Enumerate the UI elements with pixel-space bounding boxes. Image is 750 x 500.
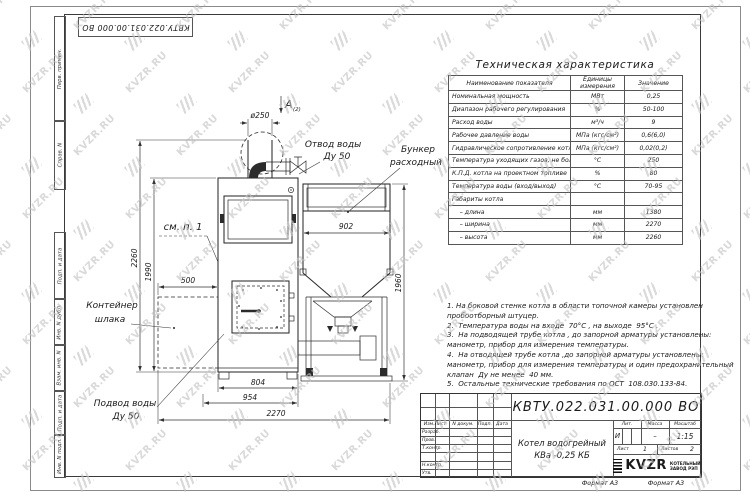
spec-table-cell: Рабочее давление воды — [449, 129, 571, 142]
spec-table: Наименование показателя Единицы измерени… — [448, 75, 683, 245]
bunker-label-1: Бункер — [401, 145, 435, 155]
spec-table-cell — [571, 193, 625, 206]
kvzr-logo-sub-line2: ЗАВОД РЭП — [670, 466, 698, 471]
spec-table-section: Техническая характеристика Наименование … — [448, 59, 682, 245]
spec-table-cell: 250 — [625, 154, 683, 167]
spec-table-row: Номинальная мощностьМВт0,25 — [449, 91, 683, 104]
revision-header-podp: Подп. — [477, 422, 493, 427]
revision-header-izm-list: Изм.Лист — [421, 422, 449, 427]
spec-table-row: Диапазон рабочего регулирования%50-100 — [449, 103, 683, 116]
spec-table-cell: Температура воды (вход/выход) — [449, 180, 571, 193]
spec-header-cell: Единицы измерения — [571, 76, 625, 91]
revision-header-doc: N докум. — [449, 422, 477, 427]
outlet-label-2: Ду 50 — [323, 152, 351, 162]
staff-row-prov: Пров. — [422, 438, 448, 443]
spec-table-cell: м³/ч — [571, 116, 625, 129]
note-line: 2. Температура воды на входе 70°С , на в… — [447, 321, 699, 331]
spec-table-cell: 0,6(6,0) — [625, 129, 683, 142]
see-note-label: см. п. 1 — [164, 222, 203, 233]
spec-table-cell: МПа (кгс/см²) — [571, 142, 625, 155]
notes-block: 1. На боковой стенке котла в области топ… — [447, 301, 699, 389]
spec-table-row: Рабочее давление водыМПа (кгс/см²)0,6(6,… — [449, 129, 683, 142]
product-name: Котел водогрейный КВа -0,25 КБ — [511, 420, 613, 477]
spec-table-body: Номинальная мощностьМВт0,25Диапазон рабо… — [449, 91, 683, 245]
outlet-label-1: Отвод воды — [305, 140, 361, 150]
spec-table-title: Техническая характеристика — [448, 59, 682, 71]
spec-table-row: Гидравлическое сопротивление котлаМПа (к… — [449, 142, 683, 155]
spec-table-cell: мм — [571, 206, 625, 219]
spec-table-cell: °С — [571, 180, 625, 193]
spec-table-row: – высотамм2260 — [449, 231, 683, 244]
inlet-leader — [157, 334, 224, 407]
slag-container-outline — [158, 297, 218, 368]
product-name-line2: КВа -0,25 КБ — [534, 449, 590, 461]
sheets-label: Листов — [661, 447, 678, 452]
spec-table-row: – длинамм1380 — [449, 206, 683, 219]
spec-table-cell: – ширина — [449, 218, 571, 231]
scale-header: Масштаб — [669, 422, 701, 427]
chimney-and-outlet — [241, 132, 306, 178]
spec-table-cell: 50-100 — [625, 103, 683, 116]
spec-table-cell: Температура уходящих газов, не более — [449, 154, 571, 167]
sheet-label: Лист — [617, 447, 629, 452]
spec-table-row: Температура уходящих газов, не более°С25… — [449, 154, 683, 167]
spec-table-cell: 9 — [625, 116, 683, 129]
see-note-leader — [207, 236, 218, 262]
spec-table-cell: % — [571, 103, 625, 116]
spec-table-cell: 1380 — [625, 206, 683, 219]
slag-label-2: шлака — [95, 315, 125, 325]
note-line: клапан Ду не менее 40 мм. — [447, 370, 699, 380]
fuel-feed-conveyor — [298, 336, 376, 360]
format-label-right: Формат А3 — [636, 479, 696, 487]
format-label-left: Формат А3 — [570, 479, 630, 487]
view-arrow-letter: А — [284, 98, 293, 111]
spec-table-row: Температура воды (вход/выход)°С70-95 — [449, 180, 683, 193]
dim-804: 804 — [251, 378, 266, 387]
inlet-label-2: Ду 50 — [112, 412, 140, 422]
kvzr-coil-icon — [613, 459, 622, 473]
sheet-number: 1 — [643, 446, 647, 453]
staff-row-nkontr: Н.контр. — [422, 463, 448, 468]
spec-table-cell: – длина — [449, 206, 571, 219]
spec-table-cell: 0,02(0,2) — [625, 142, 683, 155]
spec-table-cell: мм — [571, 218, 625, 231]
spec-table-cell: Габариты котла — [449, 193, 571, 206]
dim-954: 954 — [243, 393, 258, 402]
revision-header-data: Дата — [493, 422, 511, 427]
spec-table-cell: – высота — [449, 231, 571, 244]
spec-table-cell — [625, 193, 683, 206]
spec-table-cell: Расход воды — [449, 116, 571, 129]
fuel-bunker — [300, 184, 393, 381]
dim-2270: 2270 — [266, 409, 285, 418]
bunker-label-2: расходный — [389, 158, 442, 168]
dim-1990: 1990 — [144, 262, 153, 281]
spec-table-cell: Номинальная мощность — [449, 91, 571, 104]
spec-table-cell: 2260 — [625, 231, 683, 244]
mass-value: – — [641, 432, 669, 440]
kvzr-logo-text: KVZR — [625, 458, 667, 473]
spec-table-cell: 70-95 — [625, 180, 683, 193]
drawing-number: КВТУ.022.031.00.000 ВО — [511, 394, 701, 420]
staff-row-utv: Утв. — [422, 471, 448, 476]
dim-902: 902 — [339, 222, 354, 231]
sheets-total: 2 — [690, 446, 694, 453]
spec-table-cell: Диапазон рабочего регулирования — [449, 103, 571, 116]
company-logo: KVZR КОТЕЛЬНЫЙ ЗАВОД РЭП — [613, 454, 701, 477]
drawing-sheet: { "watermark": { "text": "KVZR.RU", "col… — [0, 0, 750, 500]
note-line: 4. На отводящей трубе котла ,до запорной… — [447, 350, 699, 360]
kvzr-logo-subtitle: КОТЕЛЬНЫЙ ЗАВОД РЭП — [670, 461, 701, 471]
slag-label-1: Контейнер — [86, 301, 138, 311]
note-line: 1. На боковой стенке котла в области топ… — [447, 301, 699, 311]
spec-header-cell: Значение — [625, 76, 683, 91]
product-name-line1: Котел водогрейный — [518, 437, 606, 449]
title-block: Изм.Лист N докум. Подп. Дата Разраб. Про… — [420, 393, 702, 478]
spec-table-cell: 0,25 — [625, 91, 683, 104]
boiler-body — [218, 178, 298, 379]
lit-value: И — [613, 432, 622, 440]
spec-table-row: – ширинамм2270 — [449, 218, 683, 231]
dim-2260: 2260 — [130, 248, 139, 267]
spec-table-row: Расход водым³/ч9 — [449, 116, 683, 129]
spec-table-cell: °С — [571, 154, 625, 167]
spec-table-row: Габариты котла — [449, 193, 683, 206]
furnace-door — [232, 281, 289, 333]
spec-header-row: Наименование показателя Единицы измерени… — [449, 76, 683, 91]
dim-d250: ø250 — [250, 111, 270, 120]
spec-table-cell: МПа (кгс/см²) — [571, 129, 625, 142]
dim-1960: 1960 — [394, 273, 403, 292]
slag-leader — [131, 324, 171, 328]
spec-table-cell: 80 — [625, 167, 683, 180]
note-line: 5. Остальные технические требования по О… — [447, 379, 699, 389]
note-line: манометр, прибор для измерения температу… — [447, 360, 699, 370]
note-line: 3. На подводящей трубе котла , до запорн… — [447, 330, 699, 340]
staff-row-tkontr: Т.контр. — [422, 446, 448, 451]
bunker-leader — [348, 168, 400, 212]
dim-500: 500 — [181, 276, 196, 285]
staff-row-razrab: Разраб. — [422, 430, 448, 435]
lit-header: Лит. — [613, 422, 641, 427]
note-line: манометр, прибор для измерения температу… — [447, 340, 699, 350]
view-arrow-sheet-ref: (2) — [293, 107, 301, 113]
spec-table-cell: К.П.Д. котла на проектном топливе — [449, 167, 571, 180]
spec-table-cell: мм — [571, 231, 625, 244]
note-line: пробоотборный штуцер. — [447, 311, 699, 321]
spec-table-cell: 2270 — [625, 218, 683, 231]
mass-header: Масса — [641, 422, 669, 427]
spec-table-cell: Гидравлическое сопротивление котла — [449, 142, 571, 155]
inlet-label-1: Подвод воды — [94, 399, 157, 409]
spec-table-row: К.П.Д. котла на проектном топливе%80 — [449, 167, 683, 180]
spec-header-cell: Наименование показателя — [449, 76, 571, 91]
scale-value: 1:15 — [669, 432, 701, 441]
spec-table-cell: МВт — [571, 91, 625, 104]
spec-table-cell: % — [571, 167, 625, 180]
